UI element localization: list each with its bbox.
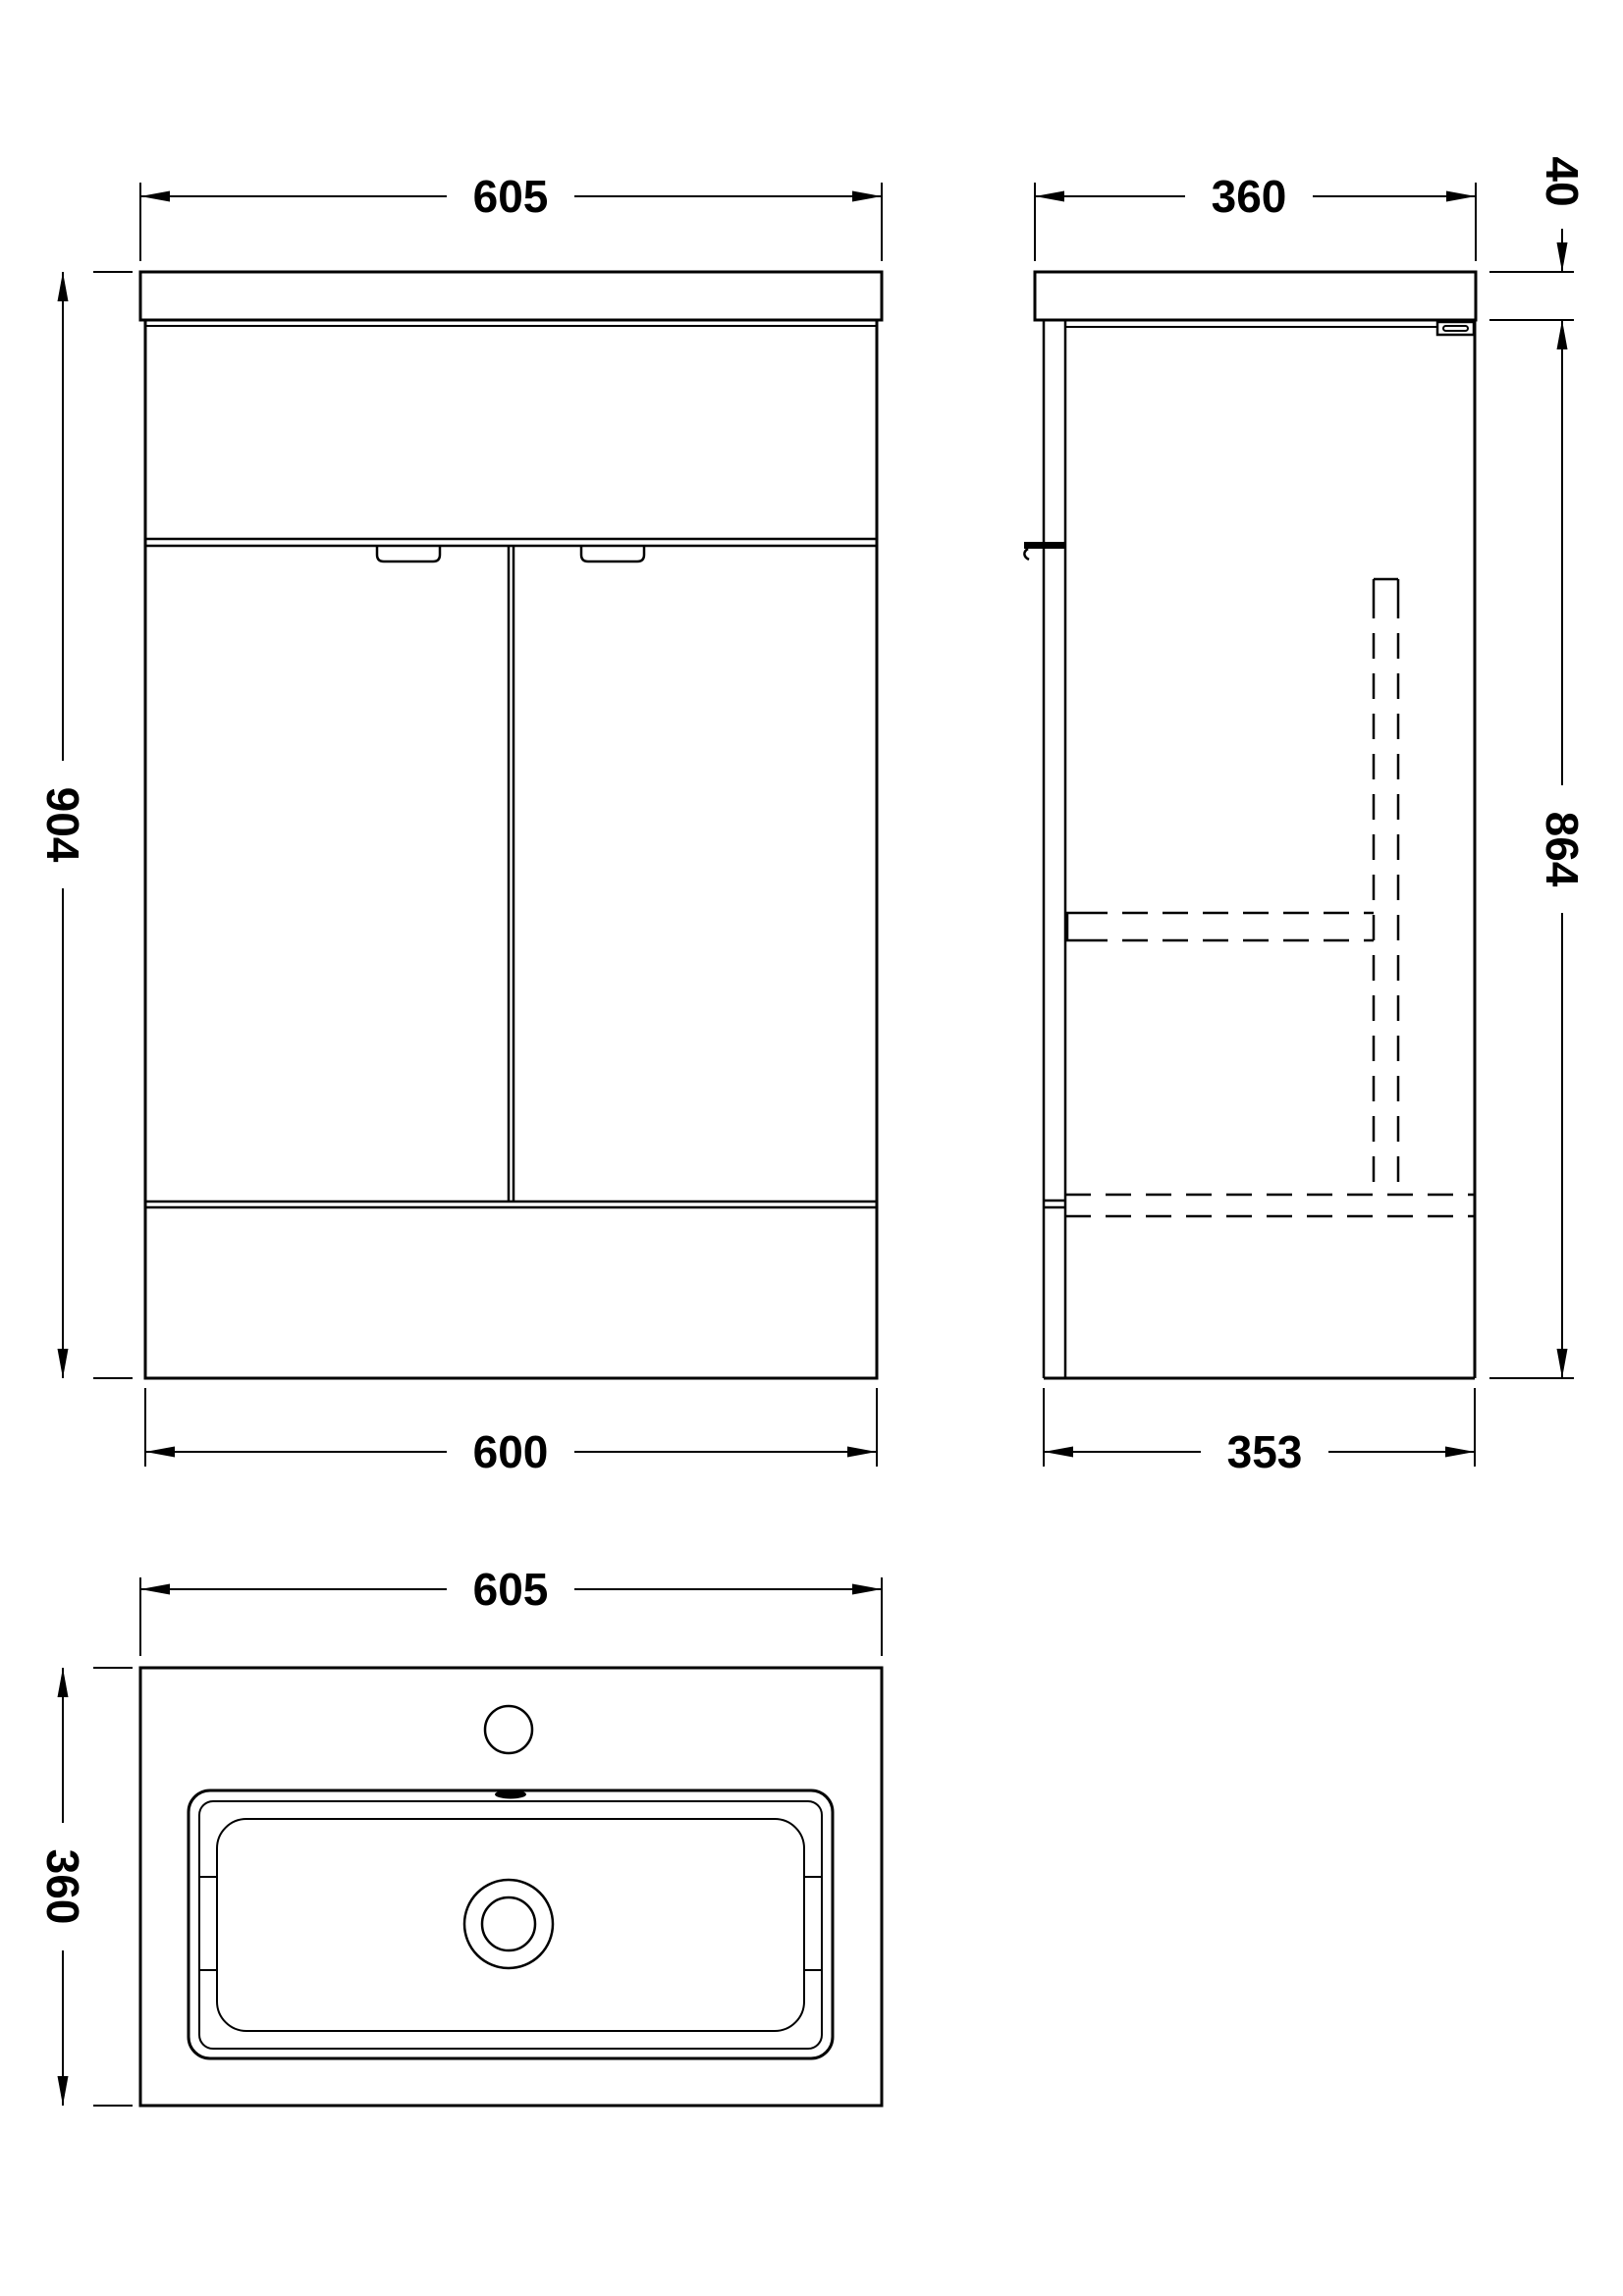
side-handle-lip-profile [1024,542,1065,549]
arrowhead-left [140,1584,170,1595]
dim-plan-depth: 360 [37,1668,133,2106]
dim-side-depth-top: 360 [1035,171,1476,261]
dim-label-front-width-bottom: 600 [473,1426,549,1477]
rotated-label-group: 864 [1537,785,1588,913]
front-countertop [140,272,882,320]
rotated-label-group: 360 [37,1823,88,1950]
dim-label-side-depth-bottom: 353 [1227,1426,1303,1477]
plan-basin-view [140,1668,882,2106]
front-left-door-handle-recess [377,546,440,561]
plan-basin-slab [140,1668,882,2106]
arrowhead-right [847,1447,877,1458]
arrowhead-right [852,191,882,202]
plan-tap-hole [485,1706,532,1753]
dim-label-front-height: 904 [37,787,88,863]
rotated-label-group: 40 [1537,134,1588,229]
plan-bowl-outer-rim [189,1790,833,2058]
arrowhead-bottom [58,1349,69,1378]
dim-plan-width: 605 [140,1564,882,1656]
vanity-unit-technical-drawing: 605 904 600 [0,0,1623,2296]
arrowhead-right [852,1584,882,1595]
dim-label-front-width-top: 605 [473,171,549,222]
front-elevation-view [140,272,882,1378]
dim-side-counter-thickness: 40 [1489,134,1588,320]
dim-label-plan-width: 605 [473,1564,549,1615]
front-right-door-handle-recess [581,546,644,561]
arrowhead-bottom [1557,1349,1568,1378]
dim-side-body-height: 864 [1489,320,1588,1378]
side-section-view [1024,272,1476,1378]
arrowhead-bottom [58,2076,69,2106]
arrowhead-top [58,272,69,301]
side-handle-lip-curve [1024,549,1029,560]
plan-waste-inner [482,1897,535,1950]
dim-front-width-bottom: 600 [145,1388,877,1477]
side-countertop [1035,272,1476,320]
plan-bowl-inner-edge [217,1819,804,2031]
dim-label-body-height: 864 [1537,812,1588,887]
technical-drawing-page: 605 904 600 [0,0,1623,2296]
plan-bowl-mid-rim [199,1801,822,2049]
dim-front-width-top: 605 [140,171,882,261]
dim-label-counter-thickness: 40 [1537,156,1588,206]
plan-overflow-slot [495,1790,526,1799]
arrowhead-left [1035,191,1064,202]
arrowhead-left [140,191,170,202]
rotated-label-group: 904 [37,761,88,888]
dim-label-side-depth-top: 360 [1212,171,1287,222]
dim-side-depth-bottom: 353 [1044,1388,1475,1477]
arrowhead-left [1044,1447,1073,1458]
arrowhead-top [58,1668,69,1697]
plan-waste-outer [464,1880,553,1968]
arrowhead-right [1445,1447,1475,1458]
arrowhead-top [1557,320,1568,349]
front-cabinet-body [145,320,877,1378]
arrowhead-right [1446,191,1476,202]
dim-front-height: 904 [37,272,133,1378]
arrowhead-left [145,1447,175,1458]
side-fixing-clip-slot [1443,326,1468,331]
arrowhead-down [1557,242,1568,272]
dim-label-plan-depth: 360 [37,1849,88,1925]
